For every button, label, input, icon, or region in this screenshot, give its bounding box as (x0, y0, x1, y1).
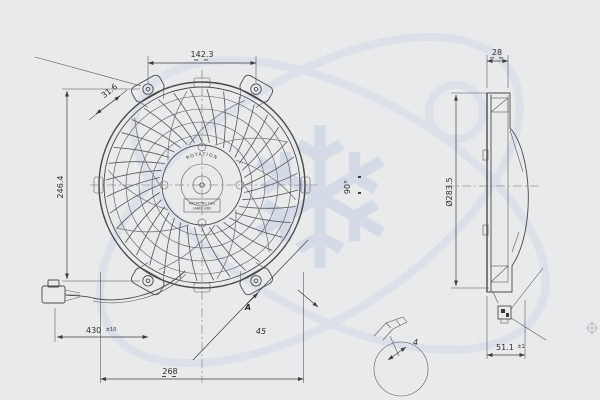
dim-tab-offset-value: 31.6 (100, 82, 120, 100)
dim-cable-tolerance: ±10 (106, 327, 117, 333)
snowflake-watermark-icon: ❄ (238, 87, 402, 315)
grille-finger (144, 108, 187, 144)
dim-total-depth-tolerance: ±1 (517, 344, 524, 350)
dim-cable-length-value: 430 (86, 326, 101, 335)
svg-text:51.1 ±1: 51.1 ±1 (496, 343, 525, 352)
grille-finger (109, 162, 165, 164)
dim-bottom-width-value: 268 (162, 367, 177, 376)
grille-finger (179, 222, 181, 278)
detail-view: 4 (374, 317, 428, 396)
spec-label-line2: LABEL SIDE (193, 207, 211, 211)
spec-label: MOUNTING THIS LABEL SIDE (184, 199, 220, 212)
fan-technical-drawing: ❄ (0, 0, 600, 400)
dim-tab-offset: 31.6 (35, 57, 141, 120)
dim-height-value: 246.4 (56, 176, 65, 199)
dim-clip-thickness: 4 (413, 338, 418, 347)
dim-top-width-value: 142.3 (191, 50, 214, 59)
connector-plug (42, 280, 80, 303)
dim-depth-value: 28 (492, 48, 502, 57)
tolerance-marks (194, 60, 198, 61)
registration-mark-icon (586, 322, 598, 334)
technical-drawing-page: ❄ (0, 0, 600, 400)
dim-diameter-value: Ø283.5 (444, 177, 454, 206)
section-angle-label: 45 (256, 327, 266, 336)
section-label: A (244, 303, 251, 312)
dim-total-depth-value: 51.1 (496, 343, 514, 352)
dim-connector-angle-value: 90° (343, 180, 352, 194)
detail-circle (374, 342, 428, 396)
spec-label-line1: MOUNTING THIS (189, 202, 215, 206)
